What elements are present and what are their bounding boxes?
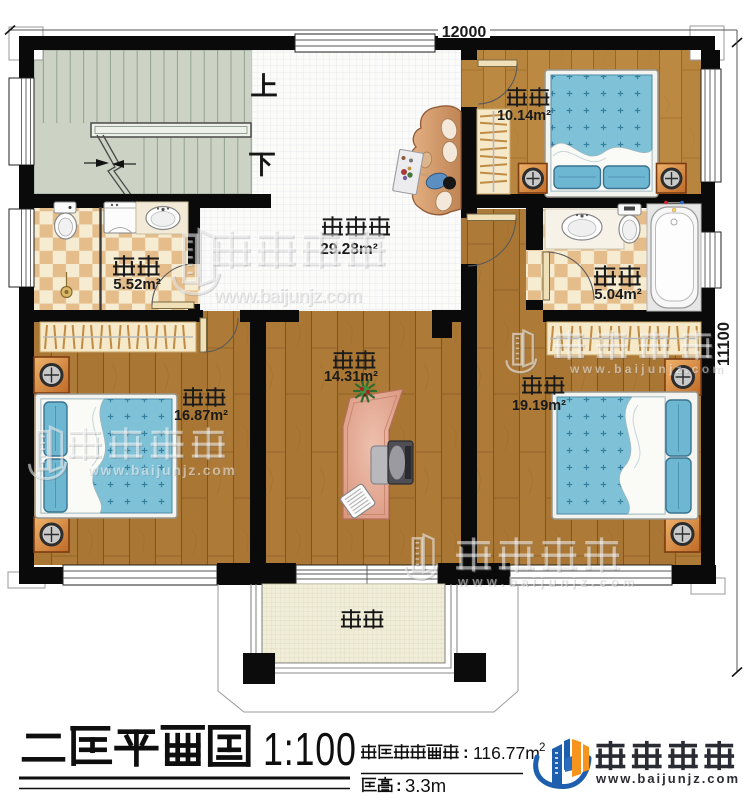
svg-text:11100: 11100 — [715, 322, 733, 366]
svg-text:www.baijunjz.com: www.baijunjz.com — [213, 286, 362, 307]
svg-text::: : — [396, 776, 402, 795]
svg-text:16.87m²: 16.87m² — [174, 408, 228, 424]
svg-text:5.04m²: 5.04m² — [594, 286, 642, 303]
svg-text:10.14m²: 10.14m² — [497, 108, 551, 124]
svg-text::: : — [463, 743, 469, 762]
svg-text:19.19m²: 19.19m² — [512, 398, 566, 414]
svg-text:5.52m²: 5.52m² — [113, 276, 161, 293]
svg-text:2: 2 — [539, 742, 545, 754]
svg-text:116.77m: 116.77m — [473, 743, 540, 763]
svg-text:12000: 12000 — [442, 24, 487, 41]
svg-text:3.3m: 3.3m — [405, 775, 446, 796]
svg-text:www.baijunjz.com: www.baijunjz.com — [595, 771, 738, 786]
svg-text:14.31m²: 14.31m² — [324, 369, 378, 385]
svg-text:1:100: 1:100 — [263, 724, 357, 775]
